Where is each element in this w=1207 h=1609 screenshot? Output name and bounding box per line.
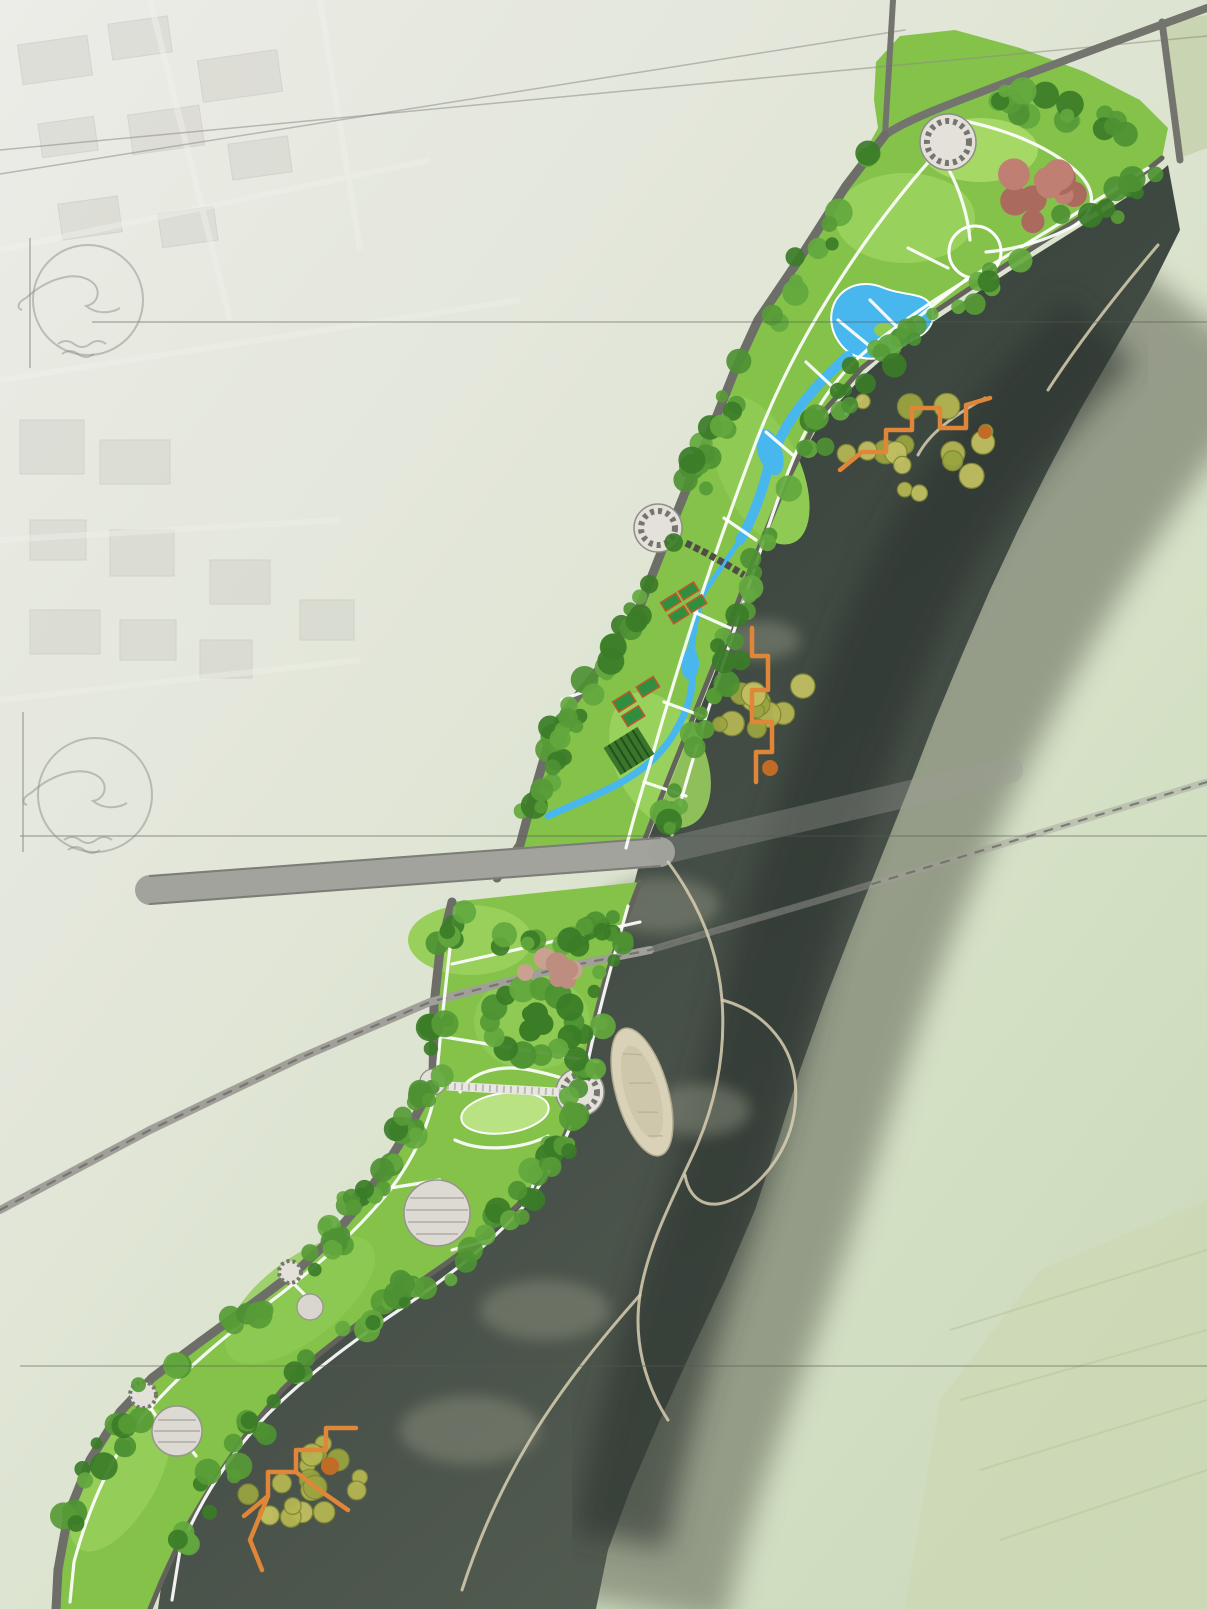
boardwalk-platform [762,760,778,776]
boardwalk-platform [978,425,992,439]
site-plan-image [0,0,1207,1609]
boardwalk-platform [321,1457,339,1475]
site-plan-svg [0,0,1207,1609]
